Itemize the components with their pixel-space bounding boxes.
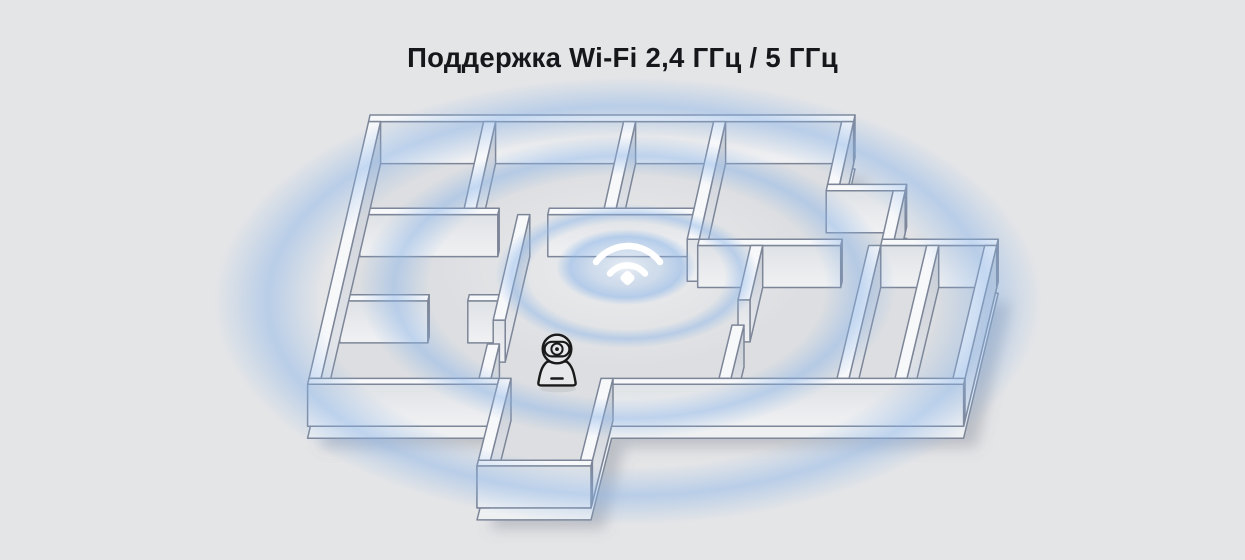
floorplan-illustration [0, 0, 1245, 560]
page-title: Поддержка Wi-Fi 2,4 ГГц / 5 ГГц [0, 42, 1245, 74]
wifi-coverage-banner: Поддержка Wi-Fi 2,4 ГГц / 5 ГГц [0, 0, 1245, 560]
wifi-wave-ring-4 [214, 77, 1042, 525]
security-camera-icon [538, 335, 576, 393]
wifi-waves [214, 77, 1042, 525]
